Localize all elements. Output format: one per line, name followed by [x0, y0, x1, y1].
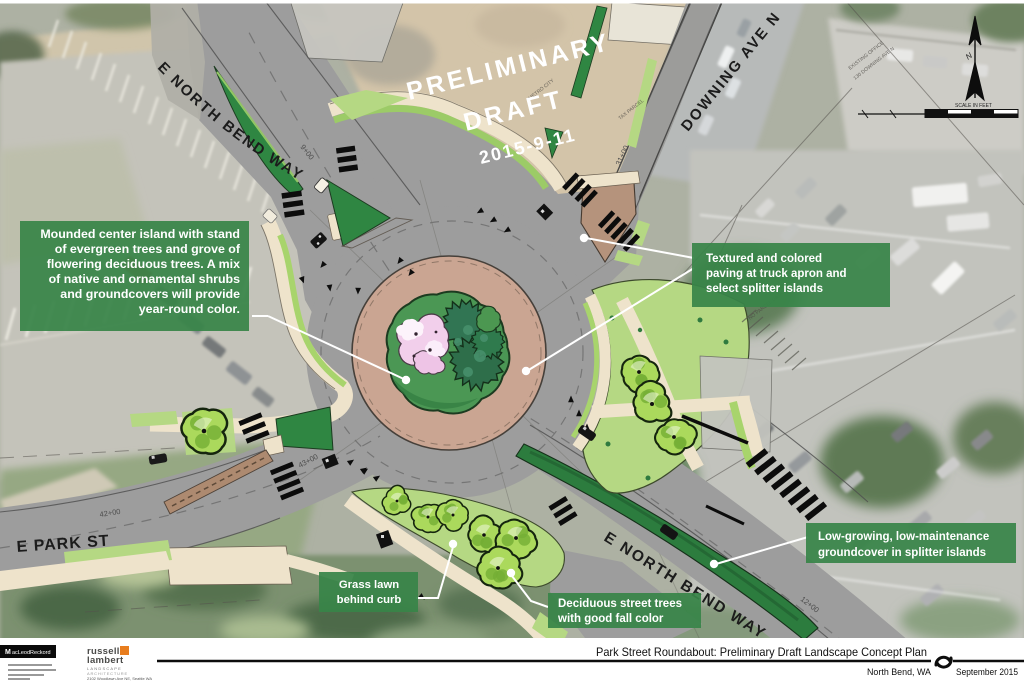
svg-text:Deciduous street trees: Deciduous street trees	[558, 598, 682, 610]
svg-text:and groundcovers will provide: and groundcovers will provide	[60, 287, 240, 301]
svg-text:groundcover in splitter island: groundcover in splitter islands	[818, 547, 986, 559]
svg-text:SCALE IN FEET: SCALE IN FEET	[955, 103, 992, 109]
svg-text:select splitter islands: select splitter islands	[706, 283, 823, 295]
svg-text:of evergreen trees and grove o: of evergreen trees and grove of	[55, 242, 241, 256]
svg-text:Textured and colored: Textured and colored	[706, 253, 822, 265]
svg-text:M: M	[5, 649, 11, 656]
svg-text:flowering deciduous trees. A m: flowering deciduous trees. A mix	[47, 257, 240, 271]
svg-text:lambert: lambert	[87, 655, 124, 666]
svg-text:of native and ornamental shrub: of native and ornamental shrubs	[49, 272, 241, 286]
svg-text:paving at truck apron and: paving at truck apron and	[706, 268, 847, 280]
svg-text:year-round color.: year-round color.	[139, 302, 240, 316]
svg-text:Mounded center island with sta: Mounded center island with stand	[40, 227, 240, 241]
svg-text:North Bend, WA: North Bend, WA	[867, 667, 932, 678]
svg-text:behind curb: behind curb	[337, 594, 402, 606]
svg-text:Grass lawn: Grass lawn	[339, 579, 399, 591]
svg-text:acLeodReckord: acLeodReckord	[12, 650, 51, 656]
svg-text:with good fall color: with good fall color	[557, 613, 664, 625]
svg-text:September 2015: September 2015	[956, 667, 1018, 678]
svg-text:Low-growing, low-maintenance: Low-growing, low-maintenance	[818, 531, 989, 543]
svg-text:2102 Woodlawn Ave NE, Seattle: 2102 Woodlawn Ave NE, Seattle WA	[87, 676, 152, 681]
svg-text:Park Street Roundabout: Preli: Park Street Roundabout: Preliminary Draf…	[596, 645, 927, 659]
